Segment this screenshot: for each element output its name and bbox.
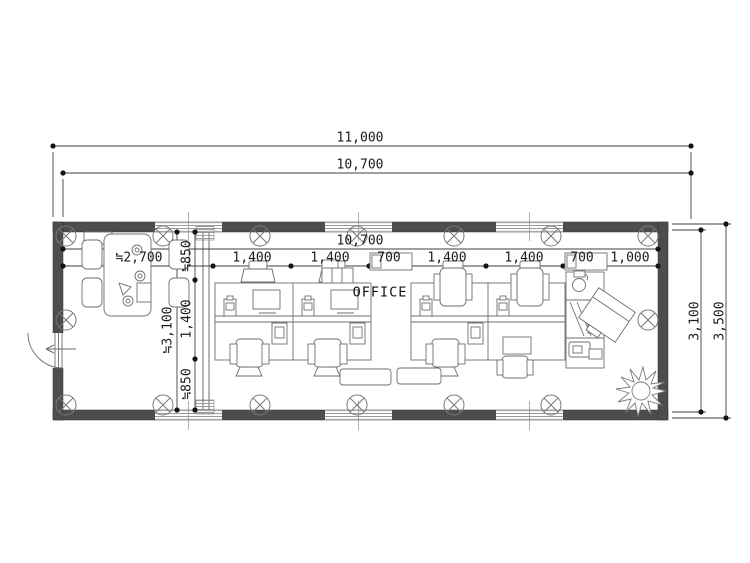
room-label: OFFICE: [353, 286, 408, 300]
floor-plan-drawing: [0, 0, 750, 563]
dimension-lines: [53, 146, 731, 418]
dim-chain-bay7: 1,000: [610, 252, 649, 265]
dim-chain-bay1: 1,400: [232, 252, 271, 265]
dim-chain-bay6: 700: [570, 252, 593, 265]
dim-left-chain-bottom: ≒850: [181, 368, 194, 399]
dim-left-depth-total: ≒3,100: [162, 307, 175, 354]
dim-left-chain-top: ≒850: [181, 240, 194, 271]
entrance-door: [28, 333, 76, 368]
dim-chain-bay2: 1,400: [310, 252, 349, 265]
meeting-chair: [82, 278, 102, 307]
dim-overall-width: 11,000: [337, 132, 384, 145]
dim-right-depth-outer: 3,500: [714, 301, 727, 340]
meeting-chair: [82, 240, 102, 269]
dim-chain-entry: ≒2,700: [116, 252, 163, 265]
partition-wall: [196, 226, 214, 414]
meeting-area: [82, 232, 189, 316]
dim-chain-bay3: 700: [377, 252, 400, 265]
dim-right-depth-inner: 3,100: [689, 301, 702, 340]
dim-chain-bay4: 1,400: [427, 252, 466, 265]
dim-wall-width: 10,700: [337, 159, 384, 172]
dim-interior-width: 10,700: [337, 235, 384, 248]
dim-left-chain-mid: 1,400: [181, 299, 194, 338]
benches: [340, 368, 441, 385]
floor-plan: 11,000 10,700 10,700 ≒2,700 1,400 1,400 …: [0, 0, 750, 563]
dim-chain-bay5: 1,400: [504, 252, 543, 265]
